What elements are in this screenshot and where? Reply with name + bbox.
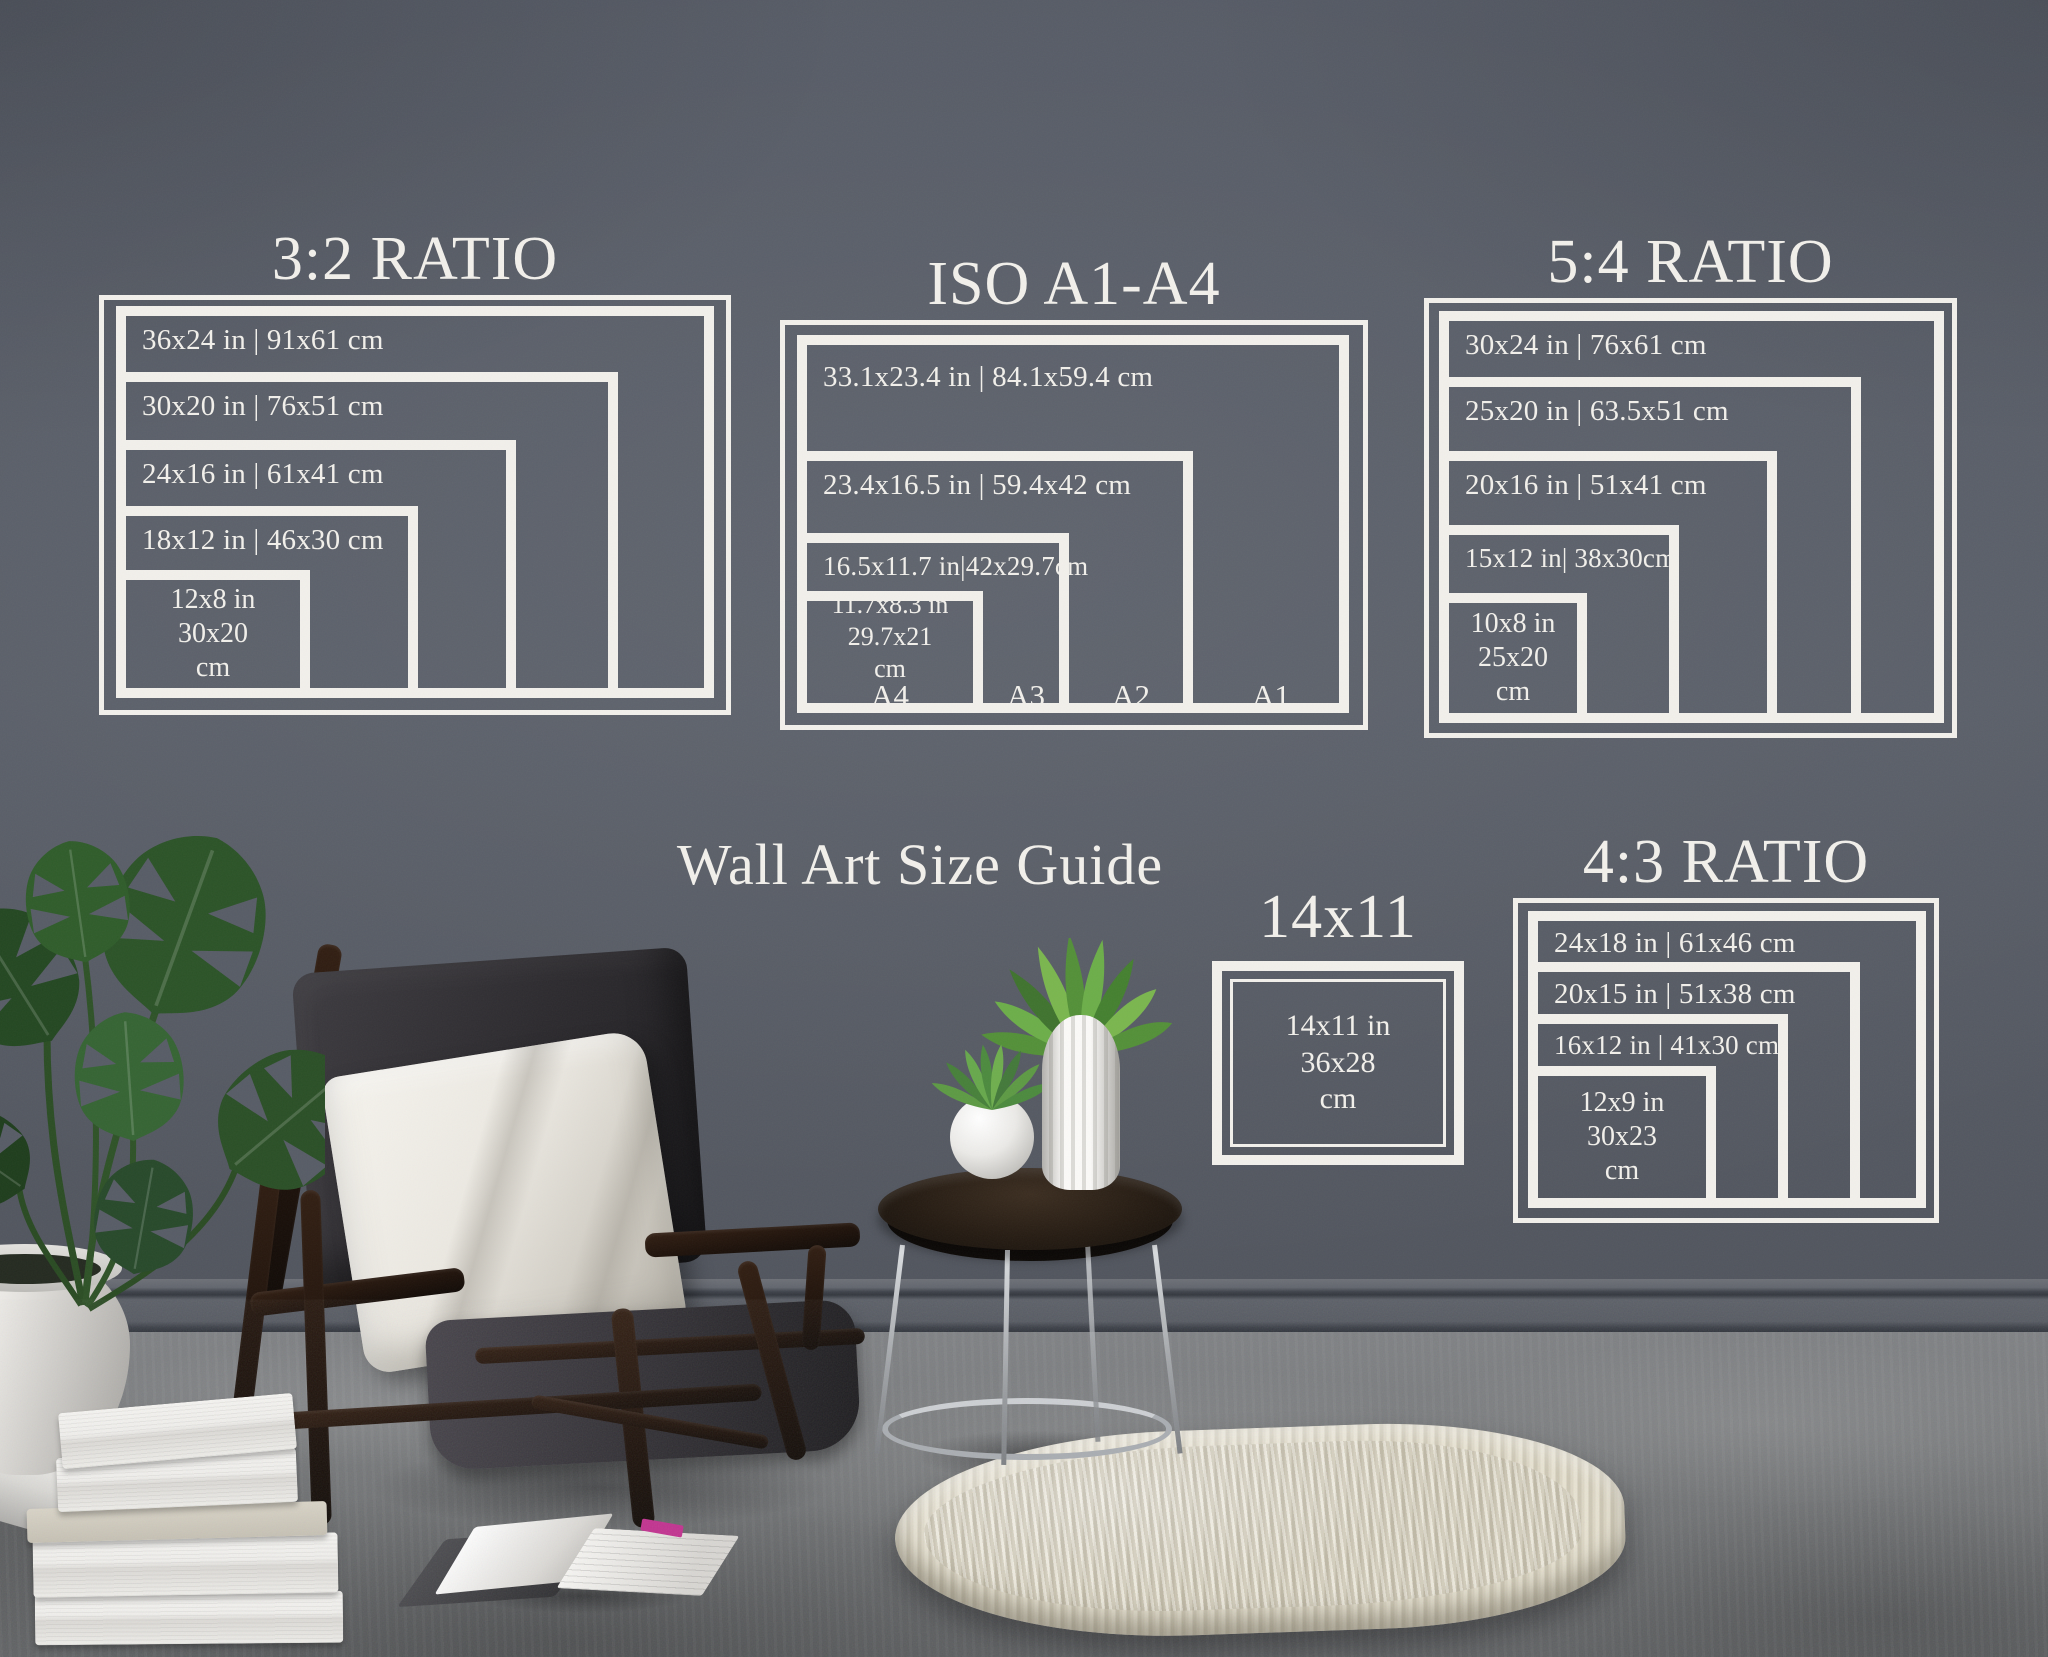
size-label: 16x12 in | 41x30 cm <box>1538 1024 1778 1061</box>
size-guide-block-14x11: 14x11 14x11 in 36x28 cm <box>1212 886 1464 1165</box>
succulent-plant <box>932 1022 1052 1112</box>
size-rect-12x9: 12x9 in 30x23 cm <box>1528 1066 1716 1208</box>
table-tray-top <box>878 1168 1182 1250</box>
open-book <box>425 1500 735 1620</box>
size-label: 30x24 in | 76x61 cm <box>1449 321 1934 362</box>
room-scene: 3:2 RATIO 36x24 in | 91x61 cm 30x20 in |… <box>0 0 2048 1657</box>
paper-label-a4: A4 <box>871 680 909 711</box>
size-rect-12x8: 12x8 in 30x20 cm <box>116 570 310 698</box>
size-label: 18x12 in | 46x30 cm <box>126 516 408 557</box>
size-label: 20x16 in | 51x41 cm <box>1449 461 1767 502</box>
size-rect-10x8: 10x8 in 25x20 cm <box>1439 593 1587 723</box>
size-guide-block-3-2: 3:2 RATIO 36x24 in | 91x61 cm 30x20 in |… <box>99 228 731 715</box>
block-title-5-4: 5:4 RATIO <box>1424 231 1957 293</box>
wall-art-size-guide-title: Wall Art Size Guide <box>640 836 1200 894</box>
side-table <box>870 1150 1190 1470</box>
block-title-3-2: 3:2 RATIO <box>99 228 731 290</box>
size-label: 36x24 in | 91x61 cm <box>126 316 704 357</box>
block-title-4-3: 4:3 RATIO <box>1513 831 1939 893</box>
paper-label-a1: A1 <box>1252 680 1290 711</box>
size-label-smallest: 14x11 in 36x28 cm <box>1222 971 1454 1155</box>
size-label-smallest: 12x9 in 30x23 cm <box>1538 1076 1706 1198</box>
size-label-smallest: 12x8 in 30x20 cm <box>126 580 300 688</box>
size-guide-block-4-3: 4:3 RATIO 24x18 in | 61x46 cm 20x15 in |… <box>1513 831 1939 1223</box>
frame-container-5-4: 30x24 in | 76x61 cm 25x20 in | 63.5x51 c… <box>1424 298 1957 738</box>
size-guide-block-5-4: 5:4 RATIO 30x24 in | 76x61 cm 25x20 in |… <box>1424 231 1957 738</box>
size-label: 30x20 in | 76x51 cm <box>126 382 608 423</box>
block-title-14x11: 14x11 <box>1212 886 1464 948</box>
book <box>35 1591 343 1646</box>
size-label: 23.4x16.5 in | 59.4x42 cm <box>807 461 1183 502</box>
block-title-iso: ISO A1-A4 <box>780 253 1368 315</box>
frame-container-3-2: 36x24 in | 91x61 cm 30x20 in | 76x51 cm … <box>99 295 731 715</box>
size-label: 24x18 in | 61x46 cm <box>1538 921 1916 960</box>
size-label: 20x15 in | 51x38 cm <box>1538 972 1850 1011</box>
size-label: 33.1x23.4 in | 84.1x59.4 cm <box>807 345 1339 394</box>
size-rect-14x11: 14x11 in 36x28 cm <box>1212 961 1464 1165</box>
paper-label-a3: A3 <box>1007 680 1045 711</box>
monstera-plant <box>0 835 325 1405</box>
frame-container-4-3: 24x18 in | 61x46 cm 20x15 in | 51x38 cm … <box>1513 898 1939 1223</box>
white-fluted-vase <box>1042 1015 1120 1190</box>
frame-container-iso: 33.1x23.4 in | 84.1x59.4 cm 23.4x16.5 in… <box>780 320 1368 730</box>
size-label: 24x16 in | 61x41 cm <box>126 450 506 491</box>
size-label-smallest: 10x8 in 25x20 cm <box>1449 603 1577 713</box>
book-stack <box>15 1395 355 1655</box>
book <box>32 1532 338 1597</box>
size-label: 16.5x11.7 in|42x29.7cm <box>807 543 1059 582</box>
size-label: 15x12 in| 38x30cm <box>1449 535 1669 574</box>
size-label: 25x20 in | 63.5x51 cm <box>1449 387 1851 428</box>
table-ring-base <box>882 1398 1172 1460</box>
size-guide-block-iso: ISO A1-A4 33.1x23.4 in | 84.1x59.4 cm 23… <box>780 253 1368 730</box>
paper-label-a2: A2 <box>1112 680 1150 711</box>
